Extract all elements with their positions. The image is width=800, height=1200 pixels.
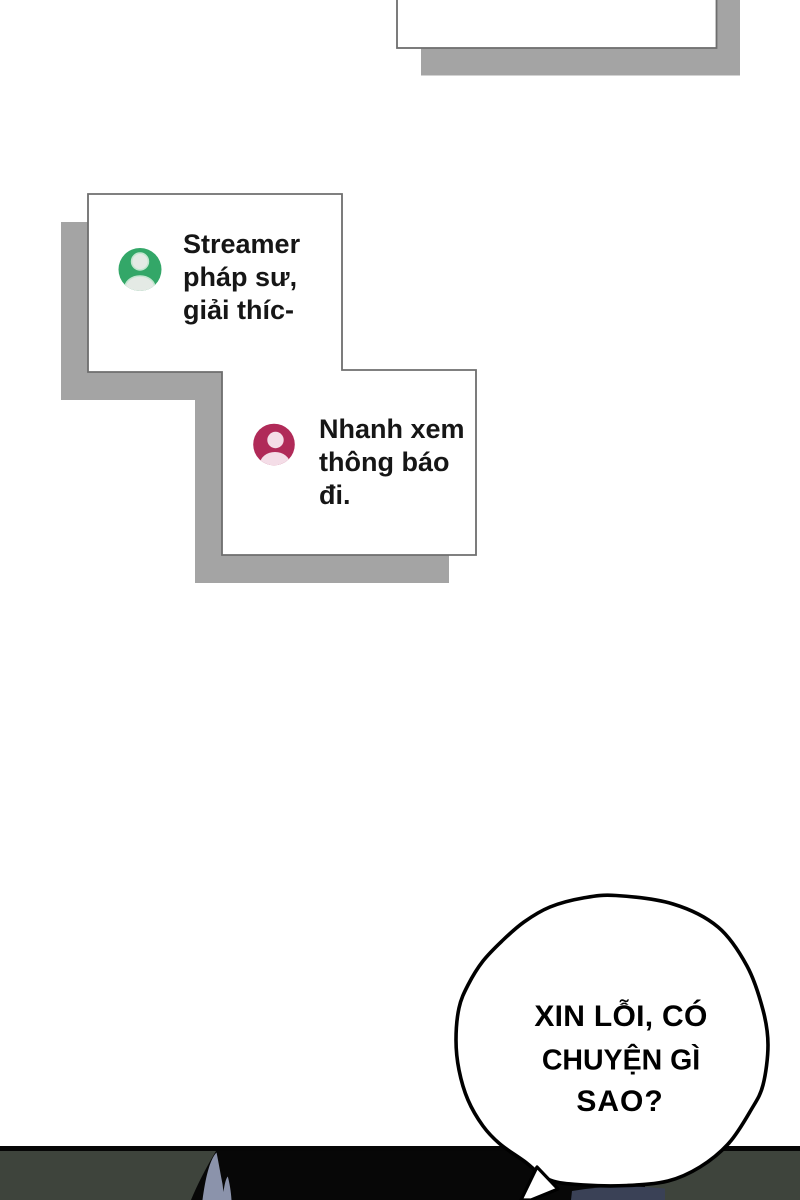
- svg-text:pháp sư,: pháp sư,: [183, 262, 297, 292]
- svg-text:thông báo: thông báo: [319, 447, 449, 477]
- svg-text:SAO?: SAO?: [576, 1085, 663, 1118]
- svg-text:CHUYỆN GÌ: CHUYỆN GÌ: [542, 1045, 700, 1077]
- svg-text:Nhanh xem: Nhanh xem: [319, 414, 465, 444]
- svg-text:XIN LỖI, CÓ: XIN LỖI, CÓ: [534, 999, 707, 1033]
- svg-text:đi.: đi.: [319, 480, 351, 510]
- svg-text:Streamer: Streamer: [183, 229, 301, 259]
- svg-text:giải thíc-: giải thíc-: [183, 295, 294, 325]
